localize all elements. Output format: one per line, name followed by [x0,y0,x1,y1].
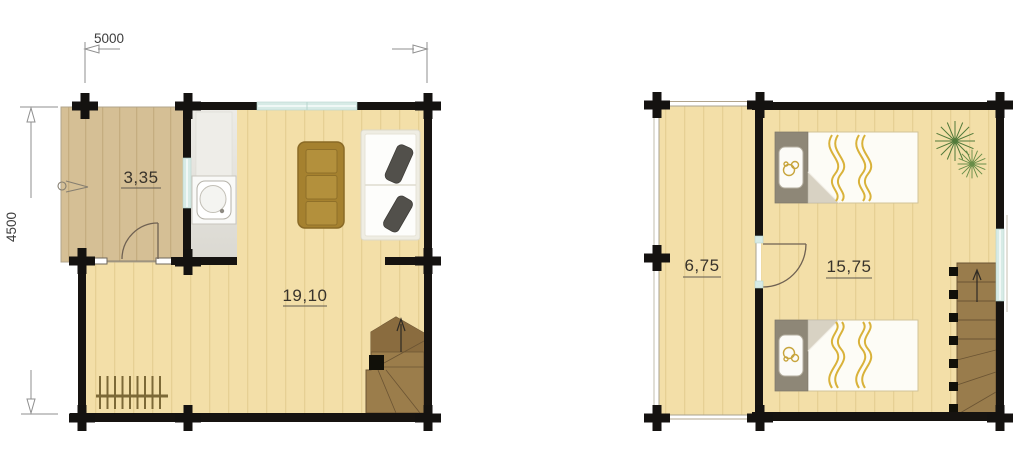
kitchenette-shelf [196,112,232,176]
porch-area-label: 3,35 [123,168,158,187]
bedroom-area-label: 15,75 [826,257,871,276]
width-dimension-lines [85,42,427,83]
threshold-step [94,258,107,264]
floor-plan-page: 3,35 19,10 5000 4500 [0,0,1031,450]
door-jamb [755,236,763,243]
window-kitchenette [183,158,191,208]
width-dimension-label: 5000 [94,31,124,46]
kitchenette-sink-icon [192,176,236,224]
window-right [996,215,1007,312]
single-bed-icon [775,320,918,391]
winder-stairs-icon [366,317,424,413]
floor-plans-canvas: 3,35 19,10 5000 4500 [0,0,1031,450]
door-jamb [755,281,763,288]
window-top [257,102,357,110]
upper-floor-plan: 6,75 15,75 [644,92,1013,431]
dining-table-icon [298,142,344,228]
landing-area-label: 6,75 [684,256,719,275]
single-bed-icon [775,132,918,203]
depth-dimension-lines [20,107,58,414]
ground-floor-plan: 3,35 19,10 [58,93,441,431]
living-area-label: 19,10 [282,286,327,305]
depth-dimension-label: 4500 [4,212,19,242]
sofa-icon [361,130,420,240]
